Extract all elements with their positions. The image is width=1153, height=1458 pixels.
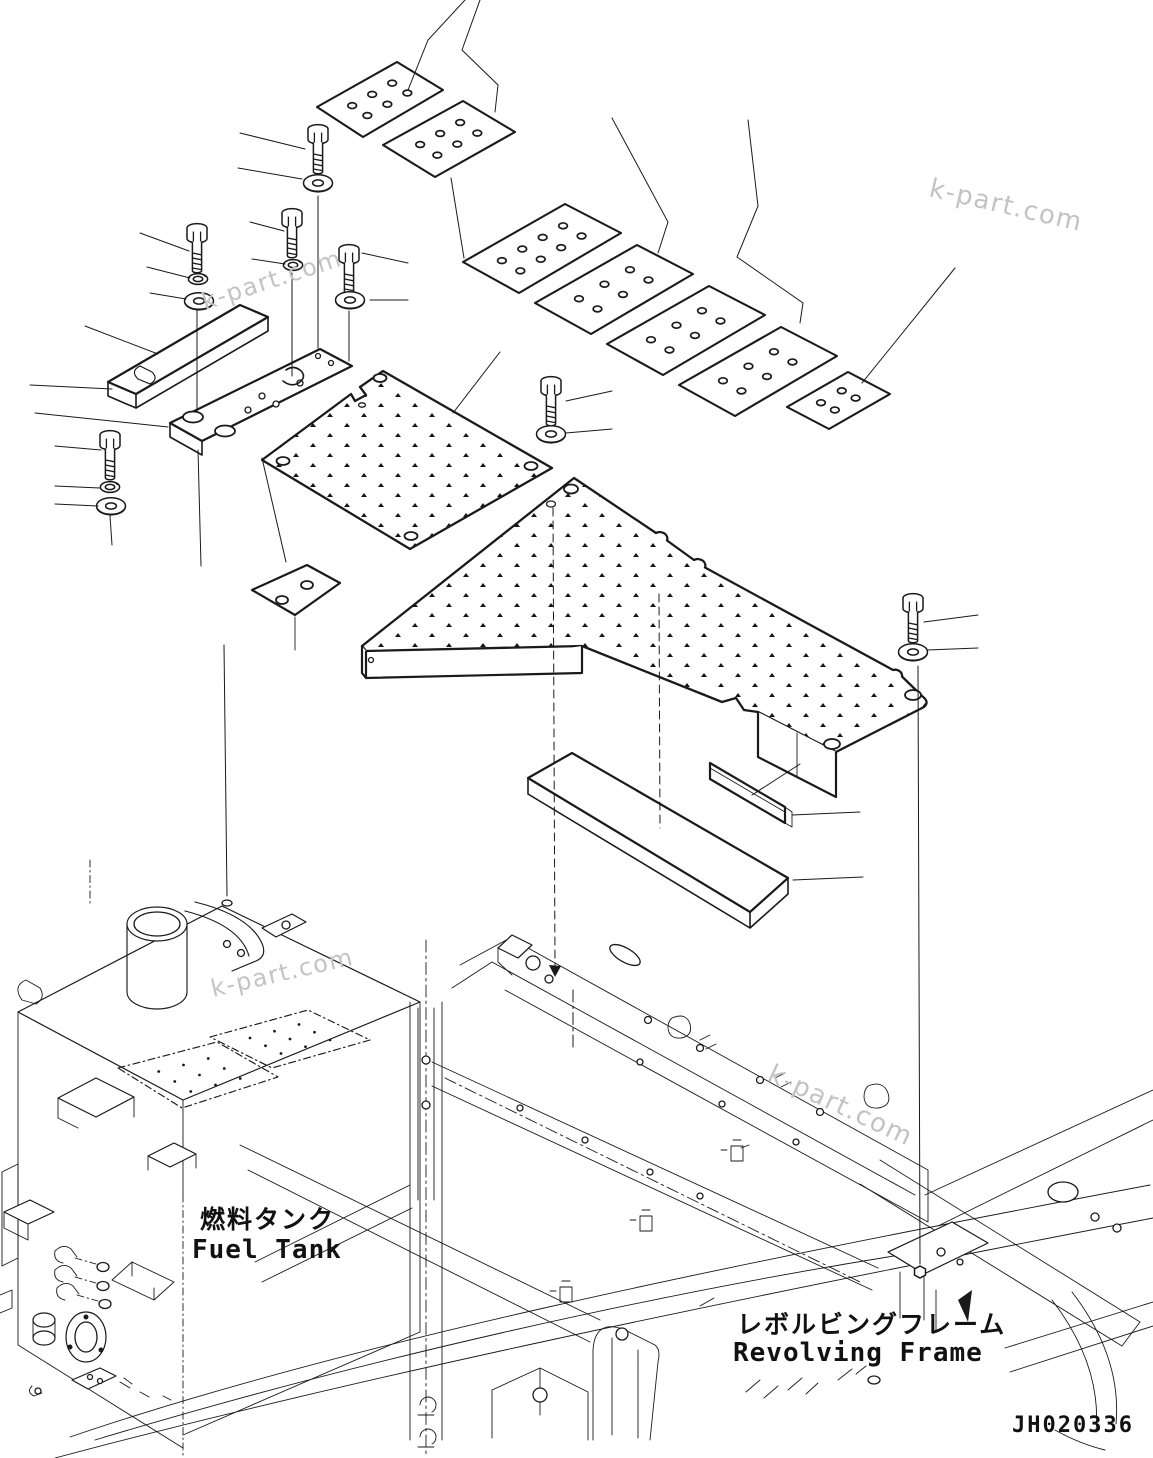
frame-pedestal-mounts xyxy=(492,1327,659,1440)
fuel-tank-top-face xyxy=(18,906,420,1100)
frame-main-rail xyxy=(452,938,928,1222)
parts-diagram-page: k-part.com k-part.com k-part.com k-part.… xyxy=(0,0,1153,1458)
cover-pad-small xyxy=(787,372,890,429)
fuel-tank-label-en: Fuel Tank xyxy=(192,1235,342,1265)
bolt xyxy=(541,377,561,426)
revolving-frame-label-en: Revolving Frame xyxy=(733,1338,983,1368)
frame-left-mount-bracket xyxy=(498,935,553,983)
watermark-text: k-part.com xyxy=(763,1059,918,1152)
lock-washer xyxy=(100,482,119,493)
flat-washer xyxy=(336,292,365,309)
watermark-text: k-part.com xyxy=(926,174,1085,238)
flat-washer xyxy=(304,175,333,192)
frame-clamps xyxy=(550,1140,749,1302)
support-bar-long xyxy=(528,753,788,928)
side-plate-small xyxy=(252,565,340,650)
drawing-number: JH020336 xyxy=(1012,1413,1134,1438)
support-strip xyxy=(710,763,792,827)
flat-washer xyxy=(899,644,928,661)
labels: 燃料タンク Fuel Tank レボルビングフレーム Revolving Fra… xyxy=(192,1205,1134,1438)
flat-washer xyxy=(97,498,126,515)
bolt xyxy=(282,209,302,258)
flat-washer xyxy=(537,426,566,443)
floor-plate-center xyxy=(262,371,552,549)
bolt xyxy=(903,594,923,643)
fuel-tank-label-jp: 燃料タンク xyxy=(200,1205,335,1234)
bolt xyxy=(100,431,120,480)
bolt xyxy=(308,125,328,174)
lock-washer xyxy=(188,274,207,285)
bolt xyxy=(187,224,207,273)
bolt-nut-target xyxy=(915,1266,926,1278)
watermark-text: k-part.com xyxy=(198,244,345,316)
frame-vertical-channel xyxy=(410,940,442,1455)
fuel-tank xyxy=(0,860,420,1455)
exploded-parts-diagram: k-part.com k-part.com k-part.com k-part.… xyxy=(0,0,1153,1458)
revolving-frame-label-jp: レボルビングフレーム xyxy=(737,1310,1006,1339)
